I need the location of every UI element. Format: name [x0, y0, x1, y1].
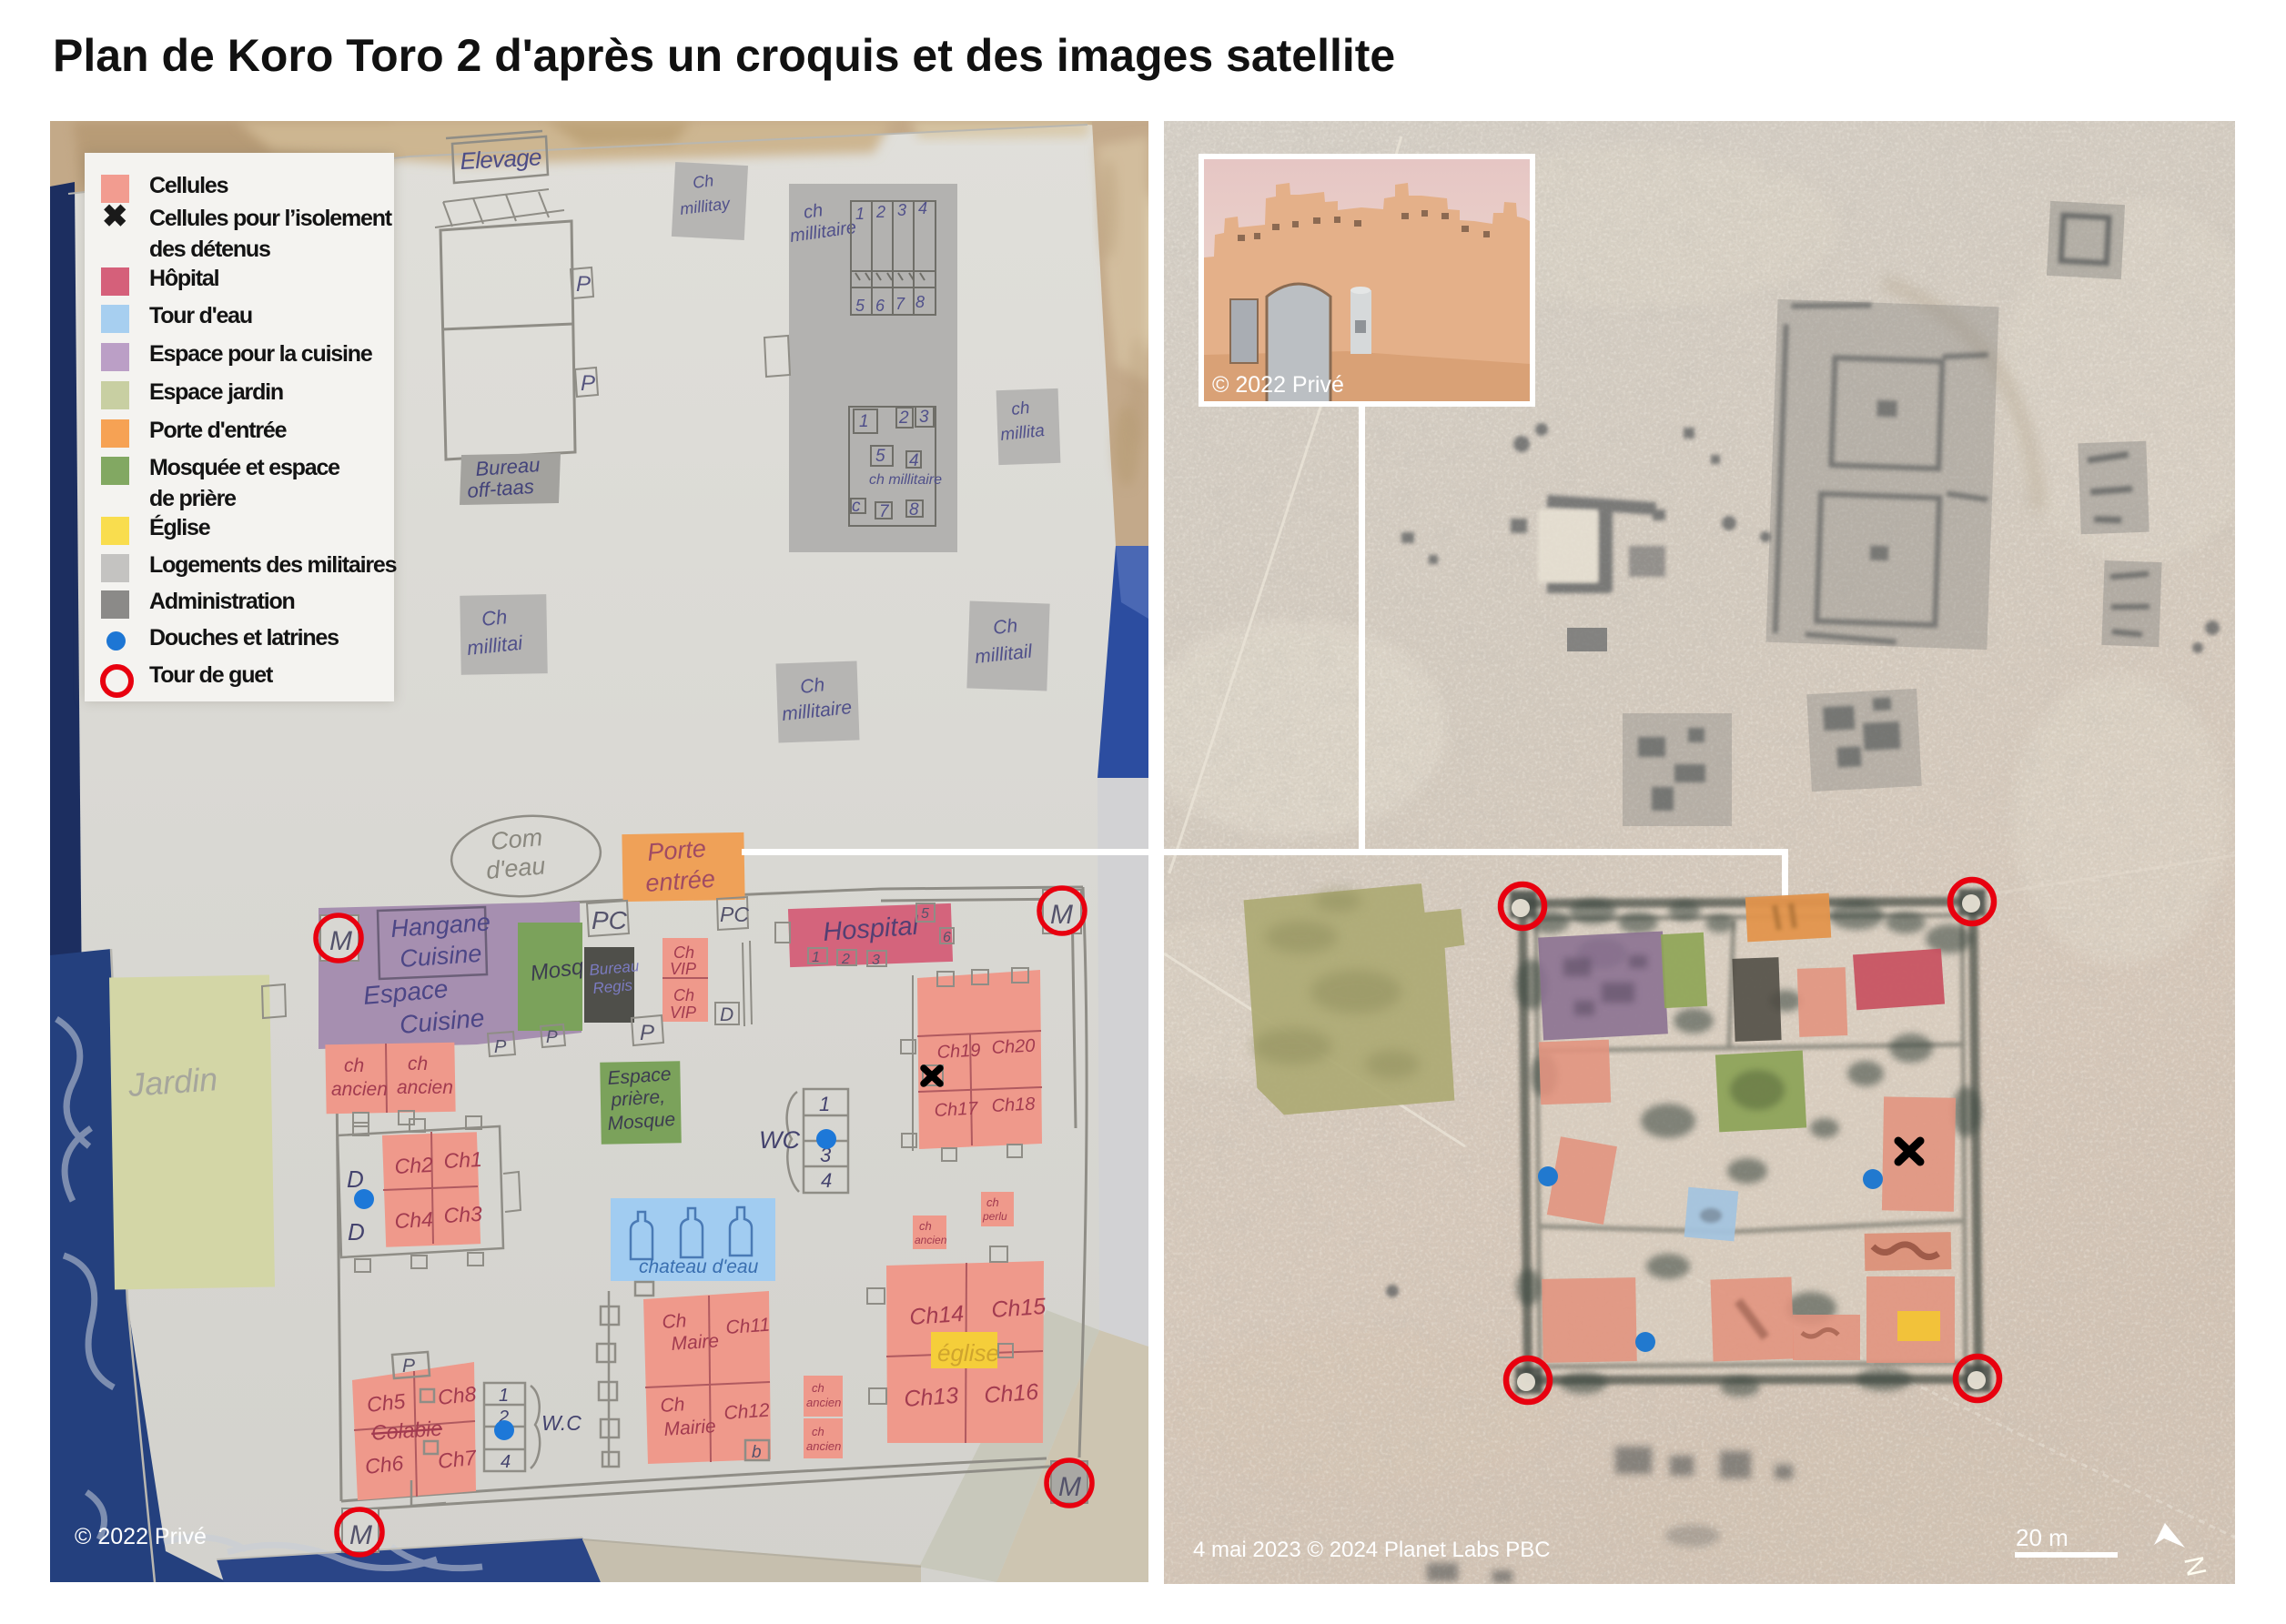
svg-text:Ch11: Ch11: [725, 1315, 771, 1338]
svg-text:1: 1: [812, 950, 820, 965]
svg-text:8: 8: [909, 500, 919, 519]
svg-text:D: D: [720, 1004, 733, 1025]
svg-text:Ch: Ch: [992, 615, 1018, 639]
svg-text:Ch: Ch: [660, 1394, 685, 1417]
svg-text:entrée: entrée: [644, 865, 715, 897]
svg-text:Ch: Ch: [799, 674, 825, 698]
svg-text:Ch3: Ch3: [443, 1202, 483, 1227]
svg-text:ch millitaire: ch millitaire: [869, 472, 942, 488]
svg-text:3: 3: [872, 953, 880, 968]
svg-text:5: 5: [855, 297, 865, 315]
svg-text:Ch12: Ch12: [723, 1400, 771, 1424]
svg-text:b: b: [752, 1443, 762, 1462]
svg-text:8: 8: [915, 293, 925, 311]
svg-text:PC: PC: [720, 903, 749, 926]
svg-text:Ch1: Ch1: [443, 1147, 483, 1173]
svg-text:Ch16: Ch16: [983, 1379, 1039, 1408]
svg-text:Espace: Espace: [607, 1064, 672, 1089]
svg-text:Ch14: Ch14: [908, 1301, 965, 1330]
svg-text:ancien: ancien: [806, 1439, 841, 1453]
svg-text:Ch8: Ch8: [437, 1382, 478, 1409]
svg-text:perlu: perlu: [982, 1210, 1007, 1223]
svg-text:ch: ch: [986, 1195, 999, 1209]
svg-text:2: 2: [898, 409, 909, 428]
svg-text:Ch6: Ch6: [364, 1451, 405, 1478]
svg-text:4: 4: [909, 451, 919, 470]
svg-text:ch: ch: [812, 1425, 824, 1438]
svg-text:Ch13: Ch13: [903, 1383, 959, 1412]
svg-text:1: 1: [855, 205, 865, 223]
svg-text:PC: PC: [592, 906, 628, 934]
svg-text:D: D: [347, 1165, 364, 1193]
svg-text:4: 4: [821, 1169, 832, 1192]
svg-text:W.C: W.C: [541, 1411, 582, 1435]
svg-text:c: c: [852, 497, 861, 516]
svg-text:P: P: [402, 1356, 415, 1377]
svg-text:Ch4: Ch4: [394, 1207, 434, 1233]
svg-text:1: 1: [499, 1386, 509, 1406]
svg-text:P: P: [581, 371, 595, 396]
svg-text:P: P: [494, 1037, 507, 1057]
svg-text:Ch: Ch: [673, 943, 694, 962]
svg-text:Ch5: Ch5: [366, 1389, 407, 1417]
svg-text:WC: WC: [759, 1126, 800, 1154]
svg-text:ch: ch: [1010, 398, 1030, 419]
svg-text:© 2022 Privé: © 2022 Privé: [1212, 372, 1344, 398]
svg-text:3: 3: [897, 201, 906, 219]
svg-text:chateau d'eau: chateau d'eau: [639, 1256, 759, 1277]
svg-text:M: M: [1058, 1472, 1081, 1502]
svg-text:ancien: ancien: [915, 1234, 947, 1246]
svg-text:6: 6: [943, 930, 951, 945]
svg-text:ch: ch: [812, 1381, 824, 1395]
svg-text:ch: ch: [919, 1219, 932, 1233]
svg-text:VIP: VIP: [670, 960, 696, 978]
svg-text:d'eau: d'eau: [485, 852, 547, 884]
svg-text:1: 1: [819, 1093, 830, 1115]
svg-text:Elevage: Elevage: [460, 143, 542, 175]
svg-text:6: 6: [875, 297, 885, 315]
svg-text:ch: ch: [803, 200, 824, 223]
svg-text:M: M: [1050, 900, 1073, 930]
svg-text:3: 3: [919, 408, 929, 427]
svg-text:P: P: [576, 272, 591, 297]
svg-text:Ch7: Ch7: [437, 1446, 479, 1473]
svg-text:Jardin: Jardin: [126, 1060, 219, 1104]
svg-text:D: D: [348, 1218, 365, 1246]
svg-text:Ch20: Ch20: [991, 1036, 1036, 1058]
svg-text:Cuisine: Cuisine: [399, 940, 482, 973]
svg-text:ch: ch: [408, 1054, 428, 1074]
svg-text:église: église: [937, 1339, 999, 1367]
svg-text:Porte: Porte: [646, 835, 706, 866]
svg-text:prière,: prière,: [610, 1086, 666, 1111]
svg-text:Ch19: Ch19: [936, 1041, 981, 1063]
svg-text:ancien: ancien: [806, 1396, 841, 1409]
svg-text:off-taas: off-taas: [467, 475, 535, 502]
svg-text:4: 4: [501, 1452, 511, 1472]
svg-text:Maire: Maire: [671, 1330, 720, 1355]
svg-text:Ch18: Ch18: [991, 1094, 1036, 1116]
svg-text:2: 2: [875, 203, 885, 221]
svg-text:Mairie: Mairie: [663, 1416, 717, 1440]
svg-text:4: 4: [918, 199, 927, 217]
svg-text:Ch2: Ch2: [394, 1153, 434, 1178]
svg-text:4 mai 2023 © 2024 Planet Labs: 4 mai 2023 © 2024 Planet Labs PBC: [1193, 1538, 1551, 1562]
svg-text:1: 1: [859, 412, 869, 431]
svg-text:2: 2: [841, 952, 850, 967]
svg-text:P: P: [546, 1028, 558, 1047]
svg-text:20 m: 20 m: [2016, 1524, 2069, 1551]
svg-text:Regis: Regis: [592, 976, 633, 997]
svg-text:© 2022 Privé: © 2022 Privé: [75, 1524, 207, 1549]
svg-text:7: 7: [895, 295, 905, 313]
svg-text:P: P: [640, 1021, 654, 1045]
svg-text:Ch: Ch: [662, 1310, 687, 1333]
svg-text:Ch17: Ch17: [934, 1098, 979, 1121]
svg-text:ancien: ancien: [331, 1079, 388, 1100]
svg-text:ch: ch: [344, 1055, 364, 1076]
svg-text:Ch15: Ch15: [990, 1294, 1047, 1323]
svg-text:5: 5: [921, 906, 929, 922]
svg-text:Ch: Ch: [480, 605, 509, 630]
svg-text:Ch: Ch: [692, 171, 714, 192]
svg-text:Com: Com: [490, 823, 543, 855]
svg-text:M: M: [349, 1520, 372, 1550]
svg-text:M: M: [329, 926, 352, 956]
svg-text:5: 5: [875, 447, 885, 466]
svg-text:7: 7: [879, 502, 890, 521]
svg-text:VIP: VIP: [670, 1004, 696, 1022]
svg-text:Ch: Ch: [673, 986, 694, 1004]
svg-text:ancien: ancien: [397, 1077, 453, 1098]
